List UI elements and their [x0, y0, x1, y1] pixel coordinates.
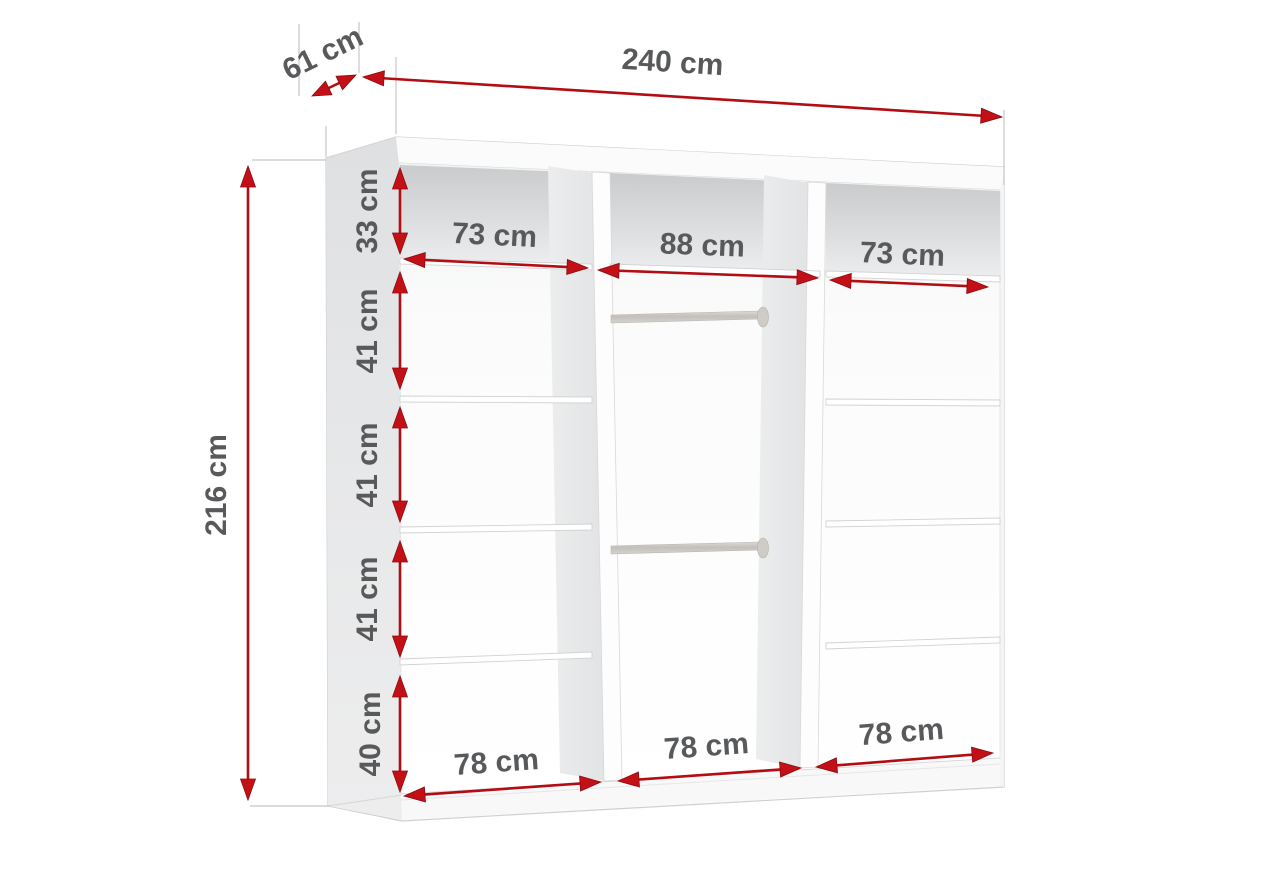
dim-arrow-height [241, 166, 256, 800]
label-top-right: 73 cm [859, 236, 945, 273]
label-bottom-right: 78 cm [858, 713, 945, 752]
right-edge-band [1000, 167, 1004, 787]
label-h41a: 41 cm [351, 288, 384, 373]
label-h40: 40 cm [354, 691, 387, 776]
diagram-stage: 61 cm 240 cm 216 cm 33 cm 41 cm 41 cm 41… [0, 0, 1280, 880]
label-width: 240 cm [621, 43, 725, 82]
wardrobe-dimension-diagram: 61 cm 240 cm 216 cm 33 cm 41 cm 41 cm 41… [0, 0, 1280, 880]
label-h41c: 41 cm [351, 556, 384, 641]
label-top-middle: 88 cm [659, 227, 745, 263]
label-h41b: 41 cm [351, 422, 384, 507]
label-top-left: 73 cm [451, 217, 538, 254]
shelf [826, 399, 1000, 406]
divider-2-side-face [756, 175, 808, 768]
label-bottom-left: 78 cm [453, 743, 540, 782]
label-h33: 33 cm [351, 168, 384, 253]
shelf [400, 396, 592, 403]
dim-arrow-depth [312, 75, 356, 96]
label-bottom-middle: 78 cm [663, 727, 750, 766]
label-height: 216 cm [200, 434, 233, 536]
